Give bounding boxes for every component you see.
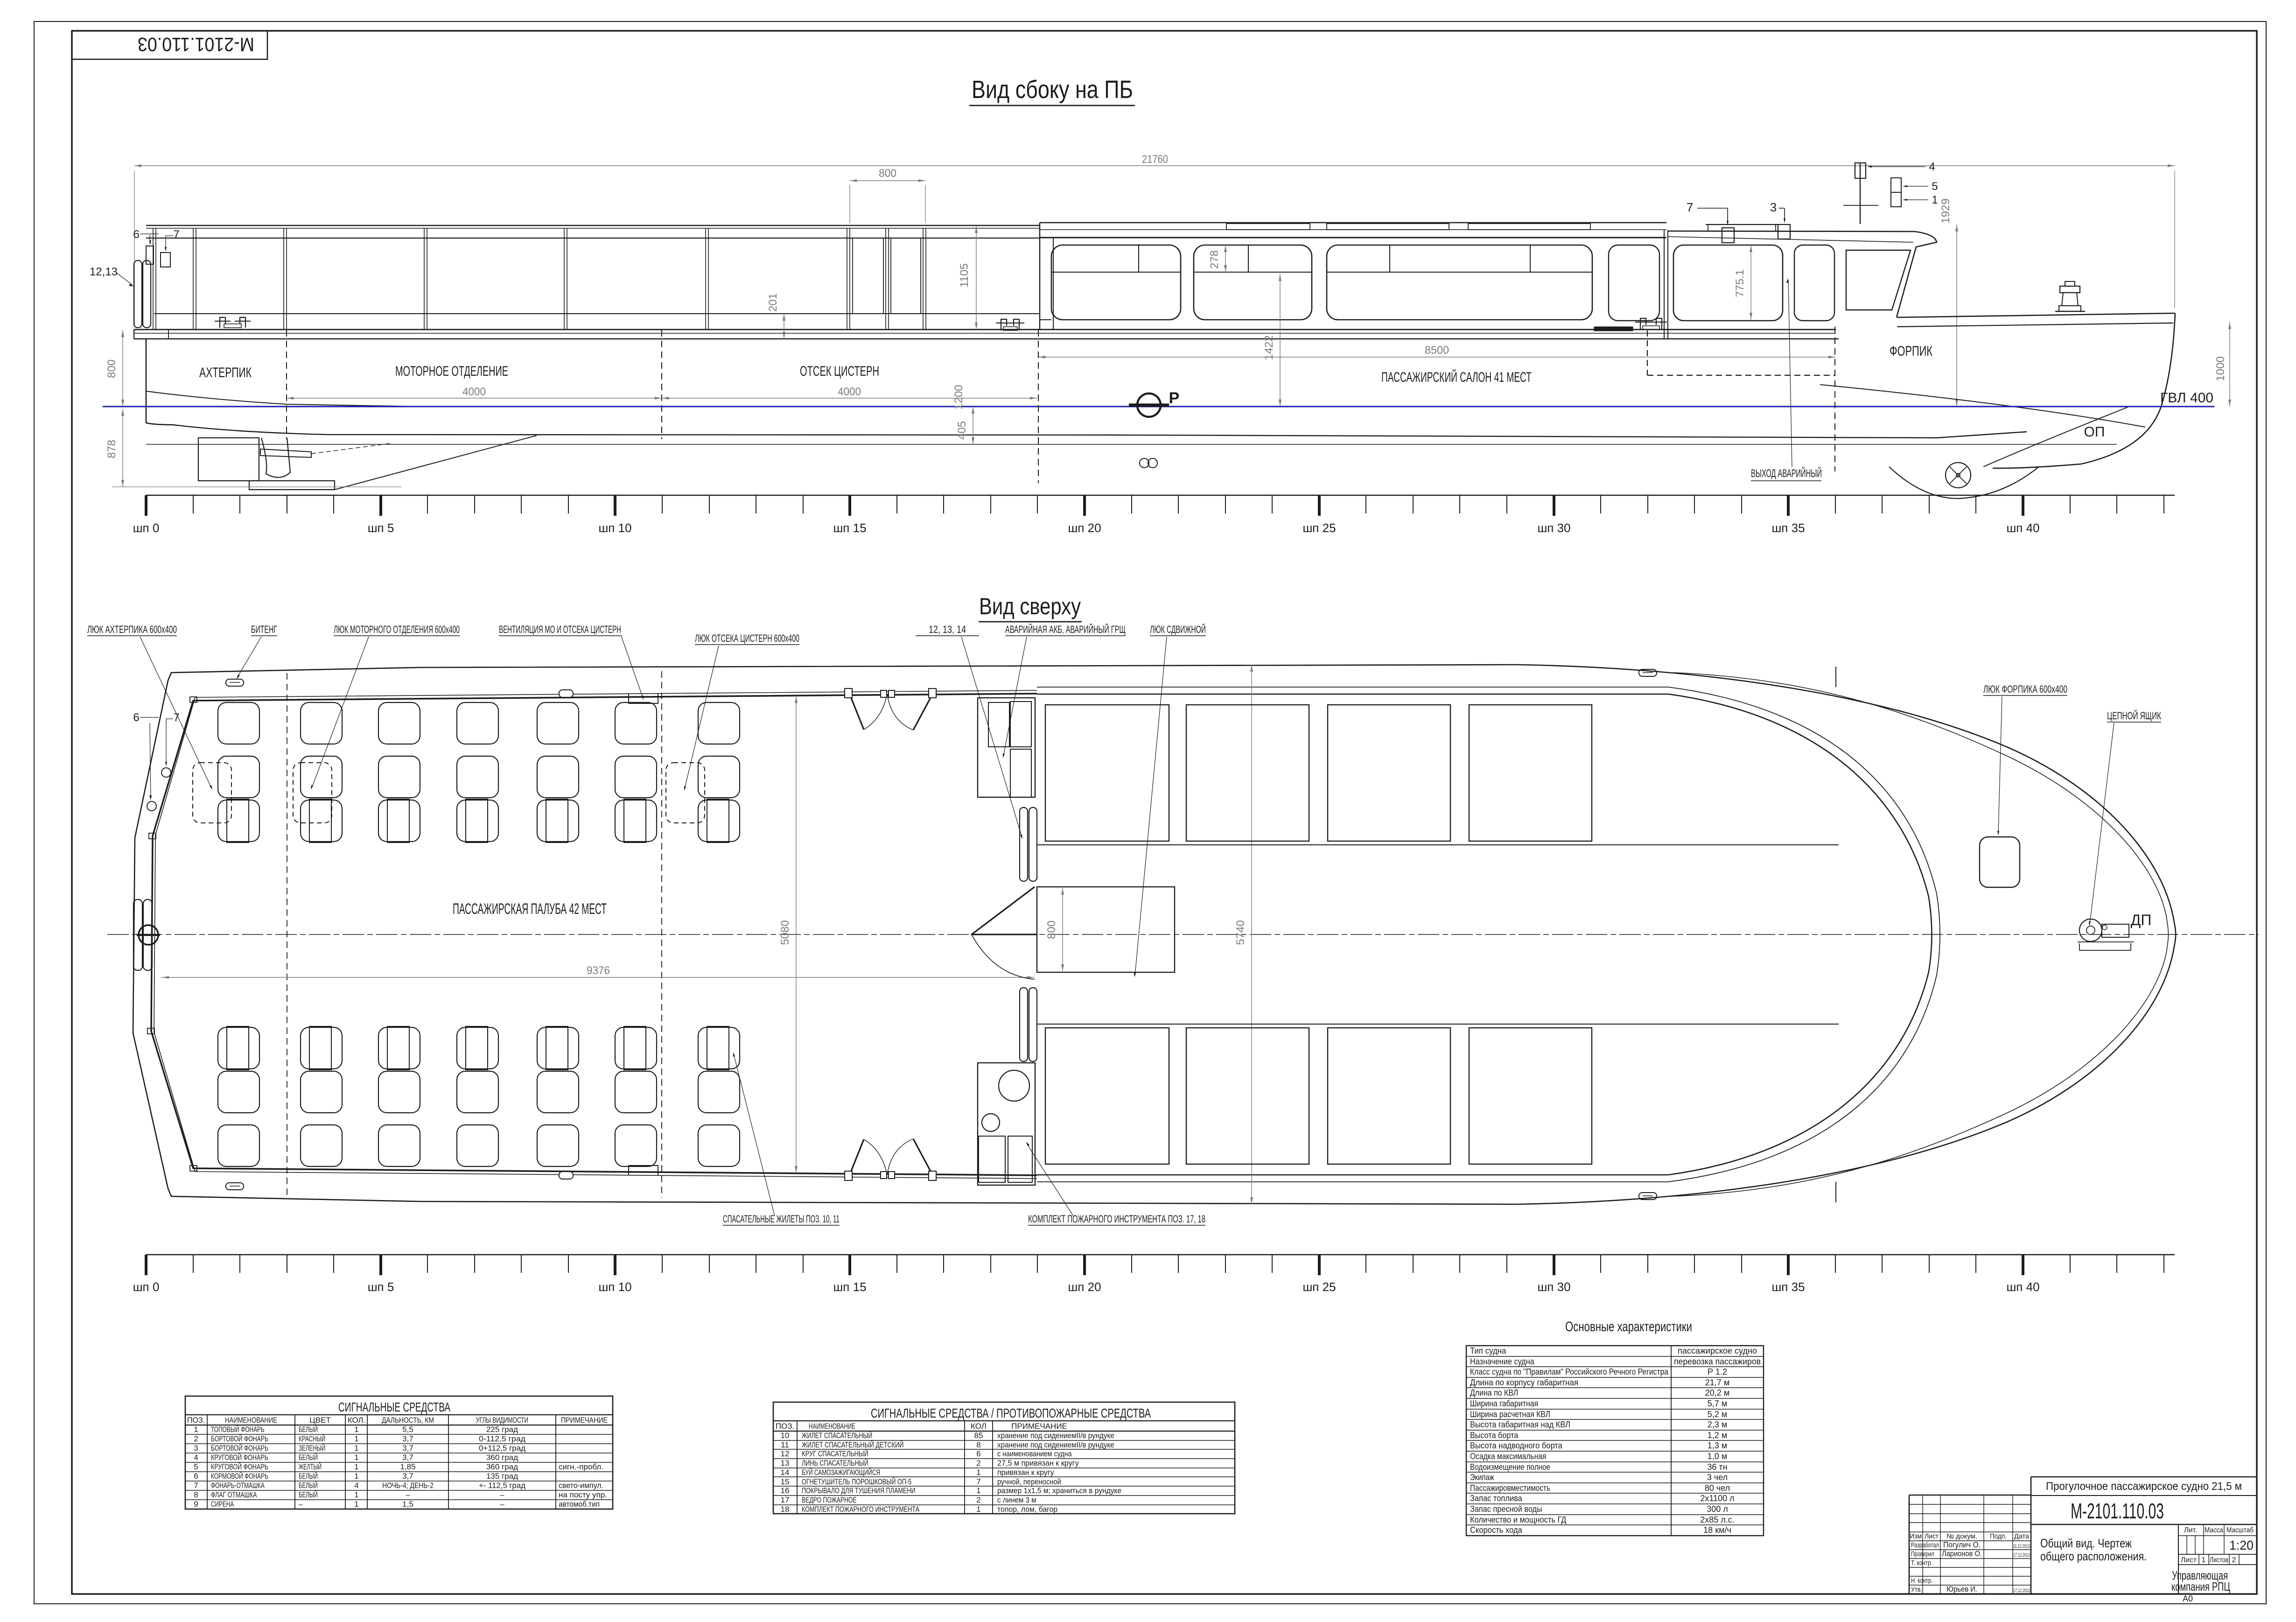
svg-text:Р: Р: [1169, 389, 1180, 407]
svg-text:300 л: 300 л: [1707, 1504, 1728, 1514]
svg-text:4: 4: [194, 1453, 198, 1462]
svg-text:775.1: 775.1: [1734, 269, 1746, 297]
svg-text:201: 201: [767, 293, 779, 312]
svg-text:–: –: [406, 1490, 410, 1499]
svg-text:Длина по корпусу габаритная: Длина по корпусу габаритная: [1470, 1378, 1578, 1387]
svg-text:шп 25: шп 25: [1302, 1280, 1336, 1294]
svg-text:шп 10: шп 10: [598, 1280, 631, 1294]
svg-text:ВЫХОД АВАРИЙНЫЙ: ВЫХОД АВАРИЙНЫЙ: [1751, 467, 1822, 480]
svg-text:1: 1: [2202, 1556, 2206, 1564]
svg-text:Осадка максимальная: Осадка максимальная: [1470, 1452, 1546, 1461]
svg-text:3,7: 3,7: [402, 1472, 413, 1481]
svg-text:Масштаб: Масштаб: [2226, 1526, 2254, 1534]
svg-text:12, 13, 14: 12, 13, 14: [929, 624, 966, 635]
svg-text:Прогулочное пассажирское судно: Прогулочное пассажирское судно 21,5 м: [2046, 1480, 2242, 1493]
svg-text:11.12.2013: 11.12.2013: [2013, 1544, 2030, 1549]
svg-text:шп 15: шп 15: [833, 521, 866, 535]
svg-text:Т. контр.: Т. контр.: [1911, 1559, 1932, 1567]
svg-text:шп 20: шп 20: [1068, 521, 1101, 535]
svg-text:БЕЛЫЙ: БЕЛЫЙ: [299, 1425, 318, 1434]
svg-text:1929: 1929: [1939, 198, 1952, 223]
svg-text:800: 800: [1045, 920, 1058, 939]
svg-text:ПРИМЕЧАНИЕ: ПРИМЕЧАНИЕ: [1011, 1422, 1067, 1431]
svg-text:Юрьев И.: Юрьев И.: [1946, 1585, 1977, 1594]
svg-text:7: 7: [173, 228, 179, 241]
svg-text:4000: 4000: [462, 386, 486, 398]
svg-text:ГВЛ 400: ГВЛ 400: [2160, 390, 2213, 406]
svg-text:ручной, переносной: ручной, переносной: [997, 1477, 1061, 1486]
svg-text:Общий вид. Чертеж: Общий вид. Чертеж: [2040, 1536, 2132, 1550]
svg-text:ФОРПИК: ФОРПИК: [1890, 344, 1932, 359]
svg-text:7: 7: [976, 1477, 980, 1486]
svg-text:ЖЕЛТЫЙ: ЖЕЛТЫЙ: [299, 1462, 322, 1471]
svg-text:шп 35: шп 35: [1771, 521, 1805, 535]
svg-text:Высота габаритная над КВЛ: Высота габаритная над КВЛ: [1470, 1420, 1570, 1429]
svg-text:1: 1: [354, 1490, 358, 1499]
svg-text:хранение под сидениемІІ/в рунд: хранение под сидениемІІ/в рундуке: [997, 1431, 1114, 1440]
svg-text:5: 5: [1932, 180, 1938, 193]
svg-text:2: 2: [976, 1459, 980, 1468]
svg-text:ЛЮК ФОРПИКА 600х400: ЛЮК ФОРПИКА 600х400: [1983, 683, 2067, 695]
svg-text:85: 85: [974, 1431, 983, 1440]
svg-text:1,2 м: 1,2 м: [1708, 1431, 1727, 1440]
svg-text:10: 10: [781, 1431, 790, 1440]
svg-text:ПОЗ.: ПОЗ.: [187, 1416, 205, 1425]
svg-text:Ларионов О.: Ларионов О.: [1942, 1549, 1982, 1558]
svg-text:1,3 м: 1,3 м: [1708, 1441, 1727, 1450]
svg-text:перевозка пассажиров: перевозка пассажиров: [1674, 1357, 1761, 1366]
svg-text:КОМПЛЕКТ ПОЖАРНОГО ИНСТРУМЕНТА: КОМПЛЕКТ ПОЖАРНОГО ИНСТРУМЕНТА ПОЗ. 17, …: [1028, 1213, 1205, 1225]
svg-text:1: 1: [194, 1425, 198, 1434]
svg-text:БУЙ САМОЗАЖИГАЮЩИЙСЯ: БУЙ САМОЗАЖИГАЮЩИЙСЯ: [802, 1468, 880, 1477]
svg-text:Лист: Лист: [1925, 1532, 1939, 1540]
svg-text:ПАССАЖИРСКИЙ САЛОН 41 МЕСТ: ПАССАЖИРСКИЙ САЛОН 41 МЕСТ: [1381, 369, 1532, 385]
svg-text:3,7: 3,7: [402, 1453, 413, 1462]
svg-text:компания РПЦ: компания РПЦ: [2171, 1580, 2230, 1594]
svg-text:9: 9: [194, 1500, 198, 1509]
svg-text:16: 16: [781, 1486, 790, 1495]
svg-text:3: 3: [1770, 200, 1777, 214]
svg-text:КОЛ.: КОЛ.: [348, 1416, 366, 1425]
svg-text:КОРМОВОЙ ФОНАРЬ: КОРМОВОЙ ФОНАРЬ: [211, 1472, 268, 1481]
svg-text:ДАЛЬНОСТЬ, КМ: ДАЛЬНОСТЬ, КМ: [382, 1416, 434, 1425]
svg-text:КРУГОВОЙ ФОНАРЬ: КРУГОВОЙ ФОНАРЬ: [211, 1453, 268, 1462]
svg-text:Экипаж: Экипаж: [1470, 1473, 1494, 1482]
svg-text:0+112,5 град: 0+112,5 град: [479, 1444, 525, 1453]
svg-text:ЛЮК СДВИЖНОЙ: ЛЮК СДВИЖНОЙ: [1150, 624, 1206, 635]
svg-text:4: 4: [354, 1481, 358, 1490]
svg-text:шп 35: шп 35: [1771, 1280, 1805, 1294]
svg-text:СПАСАТЕЛЬНЫЕ ЖИЛЕТЫ ПОЗ. 10, 1: СПАСАТЕЛЬНЫЕ ЖИЛЕТЫ ПОЗ. 10, 11: [723, 1213, 840, 1225]
svg-text:5080: 5080: [779, 920, 791, 945]
svg-text:М-2101.110.03: М-2101.110.03: [138, 34, 254, 56]
svg-text:Проверил: Проверил: [1911, 1550, 1934, 1558]
svg-text:6: 6: [133, 228, 139, 241]
svg-text:3 чел: 3 чел: [1707, 1473, 1728, 1482]
svg-text:80 чел: 80 чел: [1705, 1483, 1730, 1493]
svg-text:800: 800: [105, 359, 118, 378]
svg-text:ФЛАГ ОТМАШКА: ФЛАГ ОТМАШКА: [211, 1490, 257, 1499]
svg-text:шп 10: шп 10: [598, 521, 631, 535]
svg-text:Разработал: Разработал: [1911, 1541, 1939, 1549]
svg-text:шп 25: шп 25: [1302, 521, 1336, 535]
svg-text:КОЛ: КОЛ: [971, 1422, 987, 1431]
svg-text:4: 4: [1929, 161, 1935, 173]
svg-text:БОРТОВОЙ ФОНАРЬ: БОРТОВОЙ ФОНАРЬ: [211, 1434, 268, 1443]
svg-text:17.12.2013: 17.12.2013: [2013, 1588, 2030, 1594]
svg-text:на посту упр.: на посту упр.: [559, 1490, 607, 1499]
svg-text:№ докум.: № докум.: [1946, 1532, 1977, 1540]
svg-text:–: –: [299, 1500, 303, 1509]
svg-text:А0: А0: [2183, 1594, 2193, 1603]
svg-text:Лист: Лист: [2181, 1556, 2197, 1564]
svg-text:топор, лом, багор: топор, лом, багор: [997, 1505, 1057, 1514]
svg-text:Подп.: Подп.: [1990, 1532, 2007, 1540]
svg-text:5740: 5740: [1234, 920, 1247, 945]
svg-text:БИТЕНГ: БИТЕНГ: [251, 624, 277, 635]
svg-text:2х85 л.с.: 2х85 л.с.: [1700, 1515, 1735, 1524]
svg-text:9376: 9376: [587, 964, 610, 977]
svg-text:Класс судна по "Правилам" Росс: Класс судна по "Правилам" Российского Ре…: [1470, 1367, 1669, 1376]
svg-text:0-112,5 град: 0-112,5 град: [479, 1434, 525, 1443]
svg-text:Дата: Дата: [2014, 1532, 2030, 1540]
svg-text:АХТЕРПИК: АХТЕРПИК: [199, 365, 252, 380]
svg-text:БОРТОВОЙ ФОНАРЬ: БОРТОВОЙ ФОНАРЬ: [211, 1444, 268, 1453]
svg-text:3,7: 3,7: [402, 1444, 413, 1453]
svg-text:ПОКРЫВАЛО ДЛЯ ТУШЕНИЯ ПЛАМЕНИ: ПОКРЫВАЛО ДЛЯ ТУШЕНИЯ ПЛАМЕНИ: [802, 1486, 916, 1495]
svg-text:360 град: 360 град: [486, 1462, 518, 1471]
svg-text:Тип судна: Тип судна: [1470, 1346, 1506, 1355]
svg-text:ДП: ДП: [2131, 912, 2152, 928]
svg-text:НОЧЬ-4; ДЕНЬ-2: НОЧЬ-4; ДЕНЬ-2: [382, 1481, 434, 1490]
svg-text:1: 1: [354, 1500, 358, 1509]
svg-text:АВАРИЙНАЯ АКБ, АВАРИЙНЫЙ ГРЩ: АВАРИЙНАЯ АКБ, АВАРИЙНЫЙ ГРЩ: [1005, 624, 1126, 635]
svg-text:КРУГ СПАСАТЕЛЬНЫЙ: КРУГ СПАСАТЕЛЬНЫЙ: [802, 1449, 868, 1458]
svg-text:1: 1: [976, 1486, 980, 1495]
svg-text:МОТОРНОЕ ОТДЕЛЕНИЕ: МОТОРНОЕ ОТДЕЛЕНИЕ: [395, 364, 508, 379]
svg-text:225 град: 225 град: [486, 1425, 518, 1434]
svg-text:Длина по КВЛ: Длина по КВЛ: [1470, 1388, 1518, 1397]
svg-text:878: 878: [105, 440, 118, 458]
svg-text:шп 5: шп 5: [368, 521, 394, 535]
svg-text:2,3 м: 2,3 м: [1708, 1420, 1727, 1429]
svg-text:ЦЕПНОЙ ЯЩИК: ЦЕПНОЙ ЯЩИК: [2107, 710, 2161, 722]
svg-text:14: 14: [781, 1468, 790, 1477]
svg-text:12: 12: [781, 1449, 790, 1458]
svg-text:шп 30: шп 30: [1537, 521, 1570, 535]
svg-text:шп 5: шп 5: [368, 1280, 394, 1294]
svg-text:БЕЛЫЙ: БЕЛЫЙ: [299, 1481, 318, 1490]
svg-text:12,13: 12,13: [90, 266, 118, 278]
svg-text:ЖИЛЕТ СПАСАТЕЛЬНЫЙ ДЕТСКИЙ: ЖИЛЕТ СПАСАТЕЛЬНЫЙ ДЕТСКИЙ: [802, 1440, 903, 1449]
svg-text:ЛЮК ОТСЕКА ЦИСТЕРН 600х400: ЛЮК ОТСЕКА ЦИСТЕРН 600х400: [695, 632, 799, 644]
svg-text:размер 1х1,5 м; храниться в ру: размер 1х1,5 м; храниться в рундуке: [997, 1486, 1121, 1495]
svg-text:1: 1: [976, 1505, 980, 1514]
svg-text:Ширина габаритная: Ширина габаритная: [1470, 1399, 1538, 1408]
svg-text:с наименованием судна: с наименованием судна: [997, 1449, 1072, 1458]
svg-text:27,5 м привязан к кругу: 27,5 м привязан к кругу: [997, 1459, 1079, 1468]
svg-text:1,5: 1,5: [402, 1500, 413, 1509]
svg-text:Запас пресной воды: Запас пресной воды: [1470, 1504, 1542, 1514]
svg-text:20,2 м: 20,2 м: [1705, 1388, 1729, 1397]
svg-text:СИРЕНА: СИРЕНА: [211, 1500, 234, 1509]
svg-text:1422: 1422: [1263, 335, 1275, 360]
svg-text:5,7 м: 5,7 м: [1708, 1399, 1727, 1408]
svg-text:свето-импул.: свето-импул.: [559, 1481, 603, 1490]
svg-text:НАИМЕНОВАНИЕ: НАИМЕНОВАНИЕ: [225, 1416, 277, 1425]
svg-text:1: 1: [354, 1425, 358, 1434]
svg-text:Высота борта: Высота борта: [1470, 1431, 1519, 1440]
svg-text:СИГНАЛЬНЫЕ СРЕДСТВА: СИГНАЛЬНЫЕ СРЕДСТВА: [338, 1400, 450, 1414]
svg-text:5,5: 5,5: [402, 1425, 413, 1434]
svg-text:СИГНАЛЬНЫЕ СРЕДСТВА / ПРОТИВОП: СИГНАЛЬНЫЕ СРЕДСТВА / ПРОТИВОПОЖАРНЫЕ СР…: [871, 1406, 1151, 1420]
svg-text:ВЕДРО ПОЖАРНОЕ: ВЕДРО ПОЖАРНОЕ: [802, 1496, 857, 1504]
svg-text:шп 0: шп 0: [133, 1280, 160, 1294]
svg-text:КРАСНЫЙ: КРАСНЫЙ: [299, 1434, 325, 1443]
svg-text:привязан к кругу: привязан к кругу: [997, 1468, 1054, 1477]
svg-text:278: 278: [1208, 250, 1221, 269]
svg-text:Листов: Листов: [2210, 1556, 2228, 1564]
svg-text:7: 7: [1687, 200, 1693, 214]
svg-text:ОТСЕК ЦИСТЕРН: ОТСЕК ЦИСТЕРН: [800, 364, 879, 379]
svg-text:17: 17: [781, 1496, 790, 1504]
svg-text:–: –: [500, 1490, 504, 1499]
svg-text:1: 1: [1932, 194, 1938, 206]
svg-text:7: 7: [194, 1481, 198, 1490]
svg-text:2: 2: [2232, 1556, 2236, 1564]
svg-text:ЛИНЬ СПАСАТЕЛЬНЫЙ: ЛИНЬ СПАСАТЕЛЬНЫЙ: [802, 1459, 868, 1468]
svg-text:шп 30: шп 30: [1537, 1280, 1570, 1294]
svg-text:1: 1: [354, 1462, 358, 1471]
svg-text:3: 3: [194, 1444, 198, 1453]
svg-text:КОМПЛЕКТ ПОЖАРНОГО ИНСТРУМЕНТА: КОМПЛЕКТ ПОЖАРНОГО ИНСТРУМЕНТА: [802, 1505, 919, 1514]
svg-text:1:20: 1:20: [2229, 1538, 2254, 1552]
svg-text:ПРИМЕЧАНИЕ: ПРИМЕЧАНИЕ: [561, 1416, 608, 1425]
svg-text:ПОЗ.: ПОЗ.: [776, 1422, 794, 1431]
svg-text:Водоизмещение полное: Водоизмещение полное: [1470, 1462, 1550, 1472]
svg-text:+- 112,5 град: +- 112,5 град: [479, 1481, 525, 1490]
svg-text:1: 1: [354, 1472, 358, 1481]
svg-text:БЕЛЫЙ: БЕЛЫЙ: [299, 1453, 318, 1462]
svg-text:1,0 м: 1,0 м: [1708, 1452, 1727, 1461]
svg-text:ТОПОВЫЙ ФОНАРЬ: ТОПОВЫЙ ФОНАРЬ: [211, 1425, 265, 1434]
svg-text:3,7: 3,7: [402, 1434, 413, 1443]
svg-text:Количество и мощность ГД: Количество и мощность ГД: [1470, 1515, 1566, 1524]
svg-text:8: 8: [976, 1440, 980, 1449]
svg-text:Погулич О.: Погулич О.: [1943, 1540, 1981, 1549]
svg-text:1: 1: [976, 1468, 980, 1477]
svg-text:шп 40: шп 40: [2006, 521, 2039, 535]
svg-text:21,7 м: 21,7 м: [1705, 1378, 1729, 1387]
svg-text:405: 405: [956, 421, 968, 440]
svg-text:ПАССАЖИРСКАЯ ПАЛУБА 42 МЕСТ: ПАССАЖИРСКАЯ ПАЛУБА 42 МЕСТ: [453, 900, 607, 917]
svg-text:135 град: 135 град: [486, 1472, 518, 1481]
svg-text:БЕЛЫЙ: БЕЛЫЙ: [299, 1490, 318, 1499]
svg-text:18: 18: [781, 1505, 790, 1514]
svg-text:1: 1: [354, 1444, 358, 1453]
svg-text:Н. контр.: Н. контр.: [1911, 1577, 1932, 1585]
svg-text:2: 2: [194, 1434, 198, 1443]
svg-text:Высота надводного борта: Высота надводного борта: [1470, 1441, 1563, 1450]
svg-text:1105: 1105: [958, 263, 971, 288]
svg-text:Основные характеристики: Основные характеристики: [1565, 1319, 1692, 1334]
svg-text:автомоб.тип: автомоб.тип: [559, 1500, 600, 1509]
svg-text:Назначение судна: Назначение судна: [1470, 1357, 1534, 1366]
svg-text:М-2101.110.03: М-2101.110.03: [2071, 1499, 2164, 1523]
svg-text:8: 8: [194, 1490, 198, 1499]
svg-text:360 град: 360 град: [486, 1453, 518, 1462]
svg-text:ЛЮК МОТОРНОГО ОТДЕЛЕНИЯ 600х40: ЛЮК МОТОРНОГО ОТДЕЛЕНИЯ 600х400: [334, 624, 460, 635]
svg-text:6: 6: [133, 711, 139, 724]
svg-text:6: 6: [194, 1472, 198, 1481]
svg-text:хранение под сидениемІІ/в рунд: хранение под сидениемІІ/в рундуке: [997, 1440, 1114, 1449]
svg-text:4000: 4000: [838, 386, 861, 398]
svg-text:Ширина расчетная КВЛ: Ширина расчетная КВЛ: [1470, 1410, 1550, 1419]
svg-text:18 км/ч: 18 км/ч: [1703, 1525, 1731, 1535]
svg-text:800: 800: [879, 167, 896, 180]
svg-text:Р 1.2: Р 1.2: [1708, 1367, 1727, 1376]
svg-text:шп 15: шп 15: [833, 1280, 866, 1294]
svg-text:21760: 21760: [1142, 153, 1168, 166]
svg-text:8500: 8500: [1425, 344, 1449, 357]
svg-text:ФОНАРЬ-ОТМАШКА: ФОНАРЬ-ОТМАШКА: [211, 1481, 265, 1490]
svg-text:Запас топлива: Запас топлива: [1470, 1494, 1523, 1503]
svg-text:Вид сверху: Вид сверху: [979, 593, 1081, 619]
svg-text:Лит.: Лит.: [2184, 1526, 2197, 1534]
svg-text:15: 15: [781, 1477, 790, 1486]
svg-text:ОГНЕТУШИТЕЛЬ ПОРОШКОВЫЙ ОП-5: ОГНЕТУШИТЕЛЬ ПОРОШКОВЫЙ ОП-5: [802, 1477, 911, 1486]
svg-text:1200: 1200: [952, 385, 965, 409]
svg-text:НАИМЕНОВАНИЕ: НАИМЕНОВАНИЕ: [809, 1422, 855, 1431]
svg-text:2х1100 л: 2х1100 л: [1700, 1494, 1734, 1503]
svg-text:пассажирское судно: пассажирское судно: [1678, 1346, 1757, 1355]
svg-text:1: 1: [354, 1434, 358, 1443]
svg-text:36 тн: 36 тн: [1707, 1462, 1727, 1472]
svg-text:Изм: Изм: [1910, 1532, 1922, 1540]
svg-text:5,2 м: 5,2 м: [1708, 1410, 1727, 1419]
svg-text:шп 40: шп 40: [2006, 1280, 2039, 1294]
svg-text:ЗЕЛЕНЫЙ: ЗЕЛЕНЫЙ: [299, 1444, 325, 1453]
svg-text:УГЛЫ ВИДИМОСТИ: УГЛЫ ВИДИМОСТИ: [476, 1416, 528, 1425]
svg-text:1: 1: [354, 1453, 358, 1462]
svg-text:17.12.2013: 17.12.2013: [2013, 1552, 2030, 1558]
svg-text:ЛЮК АХТЕРПИКА 600х400: ЛЮК АХТЕРПИКА 600х400: [87, 624, 177, 635]
svg-text:общего расположения.: общего расположения.: [2040, 1549, 2147, 1563]
svg-text:КРУГОВОЙ ФОНАРЬ: КРУГОВОЙ ФОНАРЬ: [211, 1462, 268, 1471]
svg-text:БЕЛЫЙ: БЕЛЫЙ: [299, 1472, 318, 1481]
svg-text:5: 5: [194, 1462, 198, 1471]
svg-text:шп 20: шп 20: [1068, 1280, 1101, 1294]
svg-text:13: 13: [781, 1459, 790, 1468]
svg-text:Масса: Масса: [2205, 1526, 2223, 1534]
svg-text:2: 2: [976, 1496, 980, 1504]
svg-text:1,85: 1,85: [400, 1462, 415, 1471]
svg-text:Утв.: Утв.: [1911, 1586, 1922, 1594]
svg-text:6: 6: [976, 1449, 980, 1458]
svg-text:сигн.-пробл.: сигн.-пробл.: [559, 1462, 603, 1471]
svg-text:–: –: [500, 1500, 504, 1509]
svg-text:Вид сбоку на ПБ: Вид сбоку на ПБ: [972, 76, 1133, 104]
svg-text:11: 11: [781, 1440, 789, 1449]
svg-text:ЦВЕТ: ЦВЕТ: [309, 1416, 331, 1425]
svg-text:ВЕНТИЛЯЦИЯ МО И ОТСЕКА ЦИСТЕРН: ВЕНТИЛЯЦИЯ МО И ОТСЕКА ЦИСТЕРН: [499, 624, 621, 635]
svg-text:шп 0: шп 0: [133, 521, 160, 535]
svg-text:ОП: ОП: [2084, 424, 2105, 440]
svg-text:1000: 1000: [2214, 356, 2227, 381]
svg-text:с линем 3 м: с линем 3 м: [997, 1496, 1036, 1504]
svg-text:Скорость хода: Скорость хода: [1470, 1525, 1523, 1535]
svg-text:Пассажировместимость: Пассажировместимость: [1470, 1483, 1550, 1493]
svg-text:ЖИЛЕТ СПАСАТЕЛЬНЫЙ: ЖИЛЕТ СПАСАТЕЛЬНЫЙ: [802, 1431, 872, 1440]
